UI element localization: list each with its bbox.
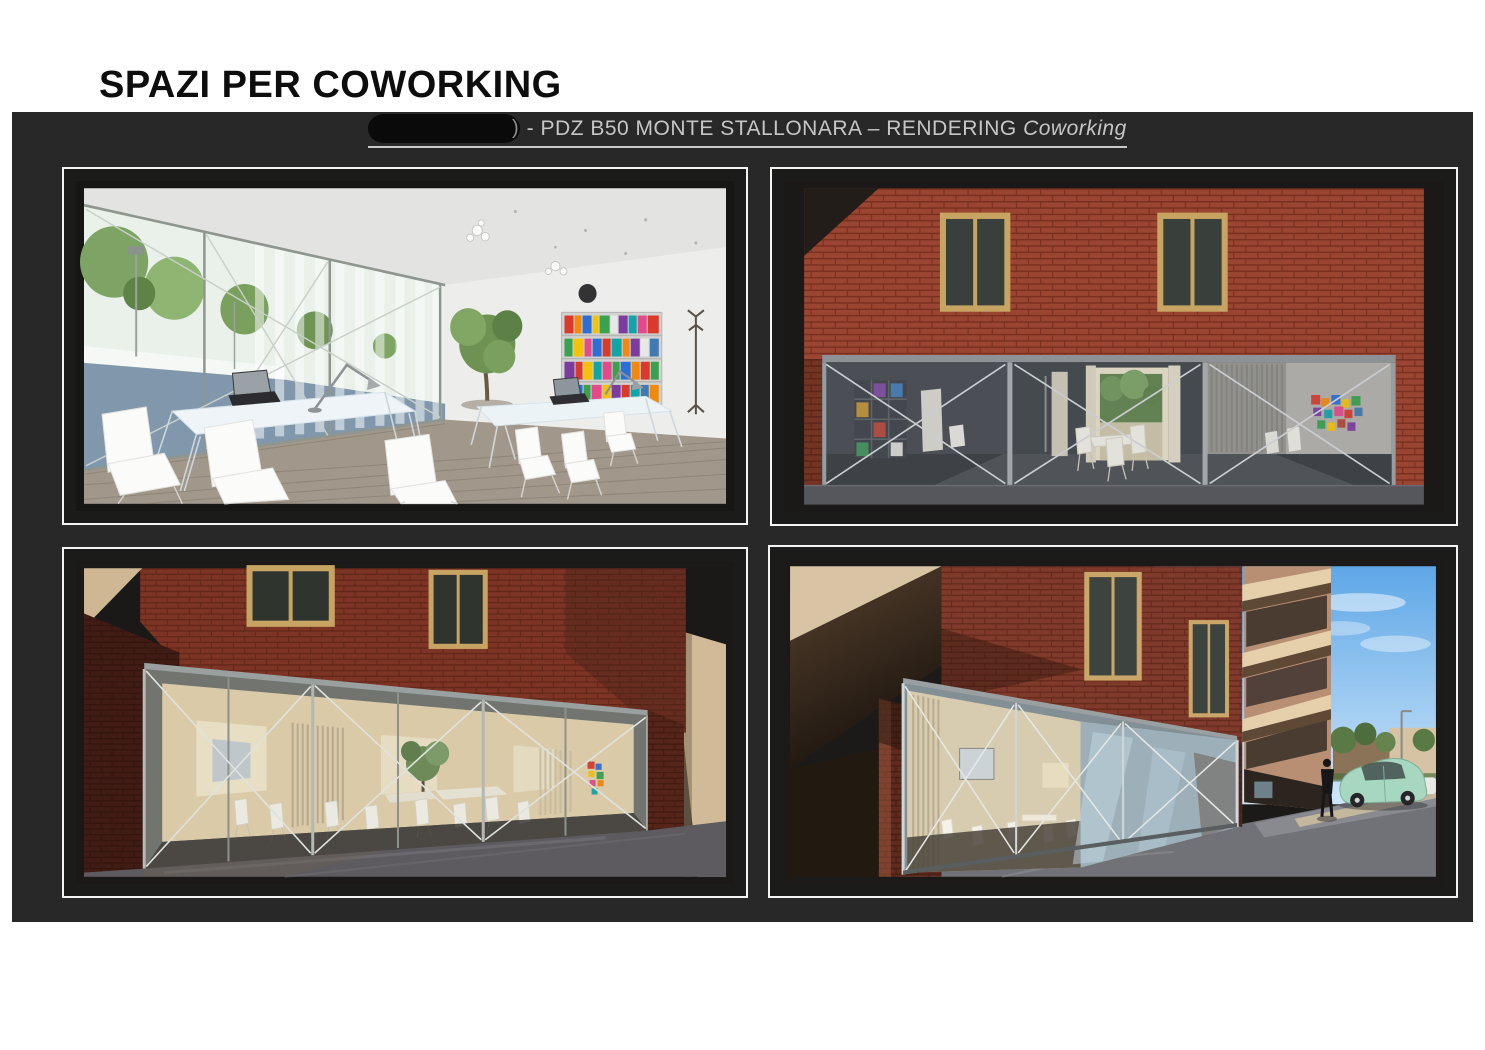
dark-board: ) - PDZ B50 MONTE STALLONARA – RENDERING… [12, 112, 1473, 922]
figure-facade-rendering [770, 167, 1458, 526]
figure-interior-rendering [62, 167, 748, 525]
glass-ground-floor [822, 355, 1395, 486]
ground-shadow [790, 748, 879, 876]
balcony-building [1242, 566, 1331, 810]
page-title: SPAZI PER COWORKING [99, 64, 562, 107]
figure-street-corner-rendering [768, 545, 1458, 898]
wall-clock [579, 284, 597, 303]
figure-glass-front-rendering [62, 547, 748, 898]
rendering-image-facade [784, 181, 1444, 512]
caption-row: ) - PDZ B50 MONTE STALLONARA – RENDERING… [368, 114, 1127, 148]
board-caption: - PDZ B50 MONTE STALLONARA – RENDERING C… [527, 117, 1127, 141]
rendering-image-glass-front [76, 561, 734, 884]
rendering-image-street-corner [782, 559, 1444, 884]
caption-text: - PDZ B50 MONTE STALLONARA – RENDERING [527, 117, 1023, 140]
caption-paren: ) [512, 117, 519, 140]
redaction-blob [368, 114, 520, 143]
slide-page: SPAZI PER COWORKING ) - PDZ B50 MONTE ST… [0, 0, 1485, 1050]
rendering-image-interior [76, 181, 734, 511]
sidewalk [804, 486, 1424, 505]
caption-emphasis: Coworking [1023, 117, 1127, 140]
right-pier [648, 710, 684, 838]
